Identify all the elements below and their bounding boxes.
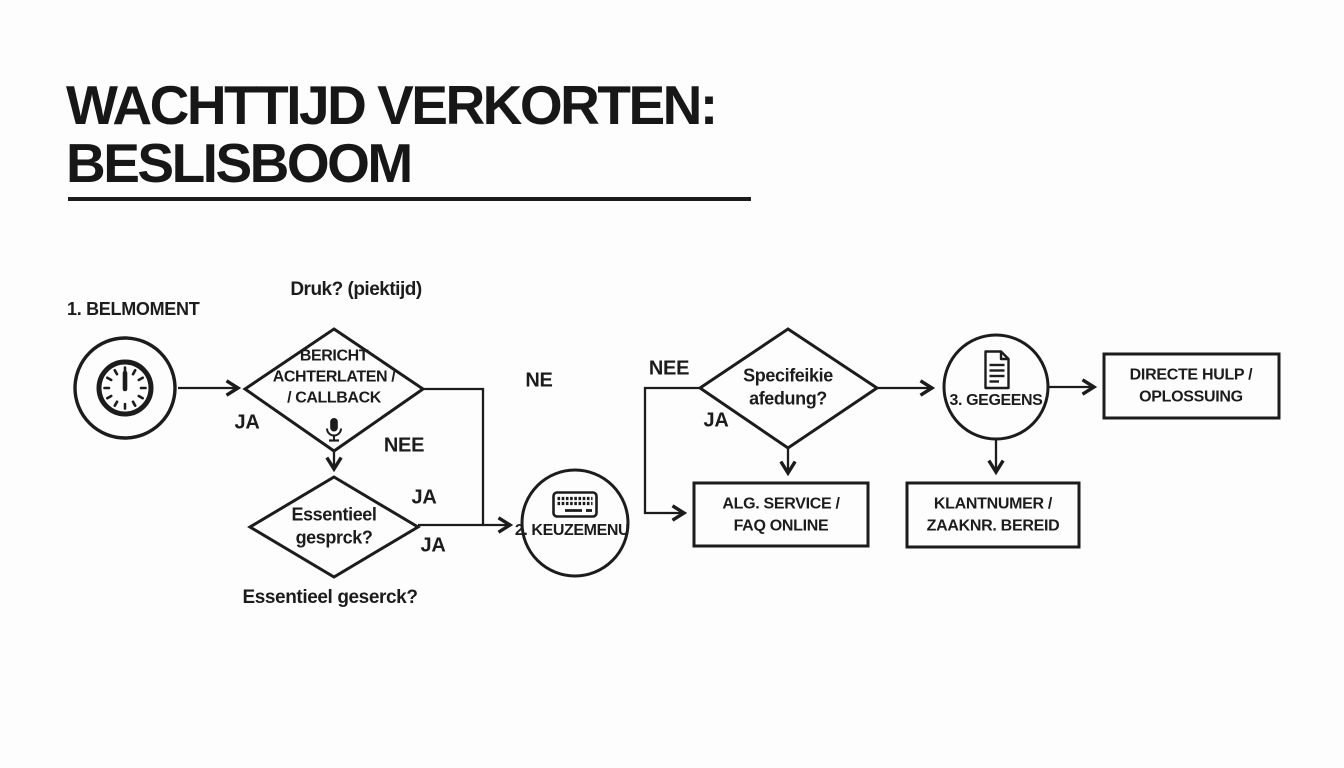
edge-label-ja-4: JA: [704, 410, 729, 433]
edge-label-ja-3: JA: [421, 535, 446, 558]
outcome-klantnummer-text: KLANTNUMER / ZAAKNR. BEREID: [927, 493, 1060, 536]
question-druk-piektijd: Druk? (piektijd): [290, 279, 421, 301]
edge-label-ja-2: JA: [412, 487, 437, 510]
outcome-directe-hulp-text: DIRECTE HULP / OPLOSSUING: [1130, 364, 1253, 407]
edge-label-nee-2: NEE: [649, 358, 689, 381]
edge-label-ja-1: JA: [235, 412, 260, 435]
clock-icon: [72, 335, 178, 441]
outcome-alg-service-text: ALG. SERVICE / FAQ ONLINE: [722, 493, 839, 536]
microphone-icon: [324, 417, 344, 444]
step-label-belmoment: 1. BELMOMENT: [67, 299, 199, 320]
beslisboom-diagram: WACHTTIJD VERKORTEN: BESLISBOOM: [0, 0, 1344, 768]
diamond-druk-text: BERICHT ACHTERLATEN / / CALLBACK: [273, 345, 396, 408]
edge-label-ne: NE: [525, 370, 552, 393]
step-label-keuzemenu: 2. KEUZEMENU: [515, 522, 629, 540]
edge-label-nee-1: NEE: [384, 435, 424, 458]
document-icon: [982, 350, 1012, 390]
diamond-essentieel-text: Essentieel gesprck?: [291, 504, 376, 551]
keyboard-icon: [552, 491, 598, 518]
caption-essentieel-gesprek: Essentieel geserck?: [242, 587, 417, 609]
arrow-d3-nee-to-alg-service: [645, 388, 700, 513]
step-label-gegevens: 3. GEGEENS: [950, 392, 1043, 410]
diamond-specifieke-text: Specifeikie afedung?: [743, 365, 833, 412]
